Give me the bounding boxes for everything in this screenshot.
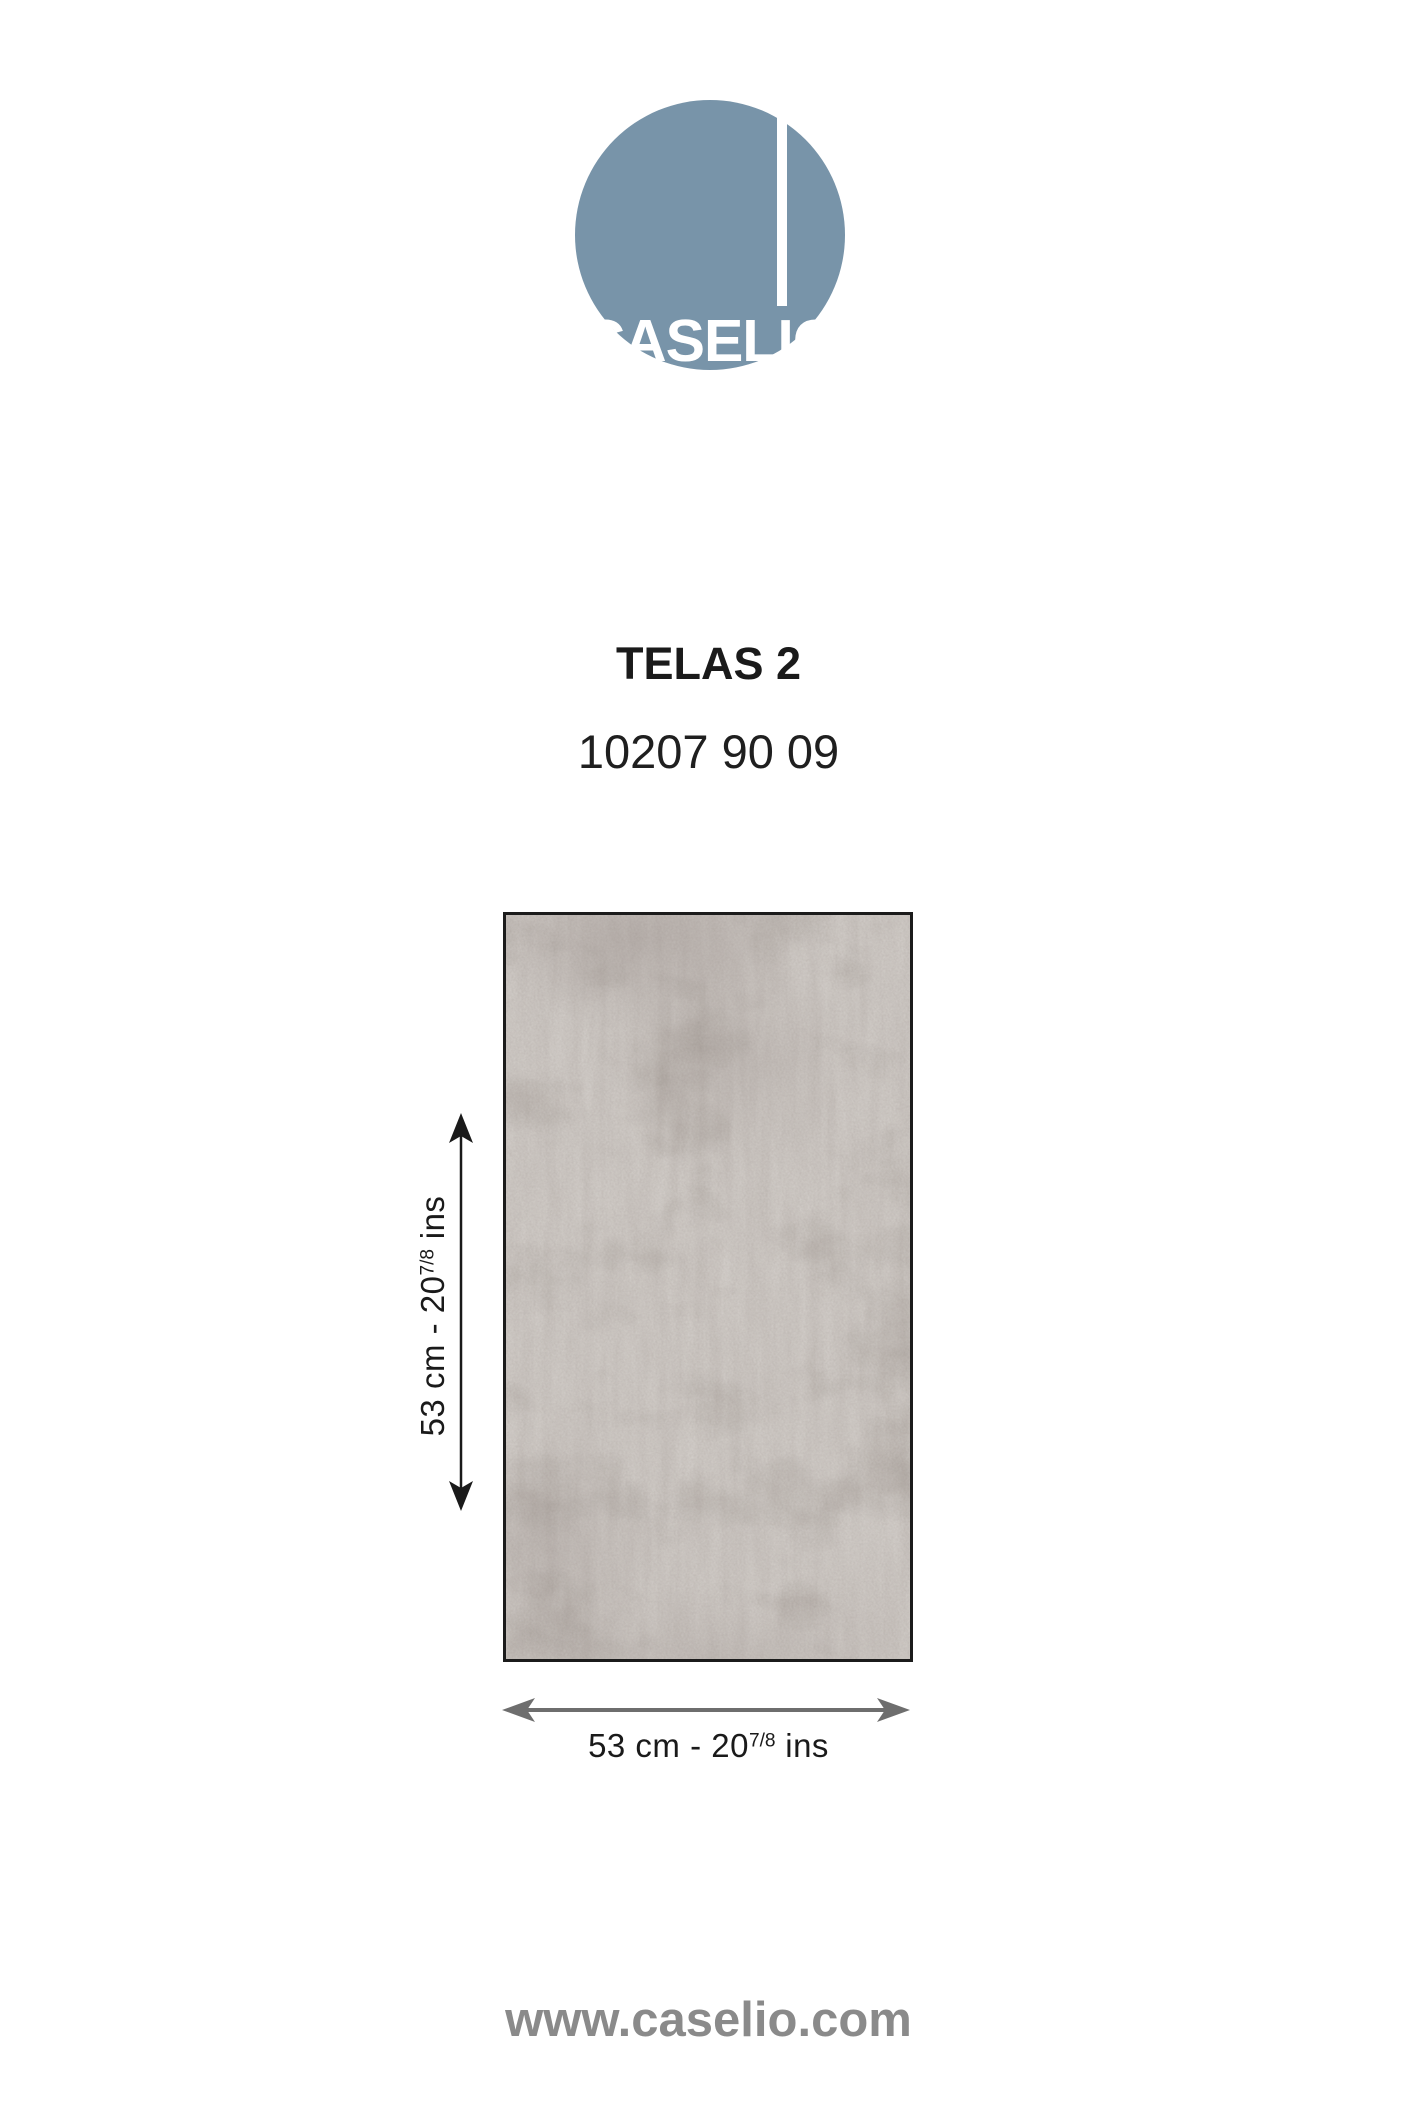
product-sheet: CASELIO TELAS 2 10207 90 09	[0, 0, 1417, 2126]
product-reference: 10207 90 09	[0, 724, 1417, 779]
height-fraction-sup: 7/8	[417, 1249, 438, 1276]
width-dimension-label: 53 cm - 207/8 ins	[0, 1727, 1417, 1765]
swatch-texture	[506, 915, 910, 1659]
wallpaper-swatch	[503, 912, 913, 1662]
logo-i-bar-icon	[777, 98, 787, 306]
logo-wordmark: CASELIO	[575, 311, 845, 371]
width-dimension-arrow	[500, 1693, 912, 1727]
brand-logo: CASELIO	[575, 100, 845, 370]
width-fraction-sup: 7/8	[749, 1730, 776, 1751]
website-footer: www.caselio.com	[0, 1992, 1417, 2048]
product-name: TELAS 2	[0, 638, 1417, 690]
height-dimension-label: 53 cm - 207/8 ins	[414, 1196, 452, 1437]
